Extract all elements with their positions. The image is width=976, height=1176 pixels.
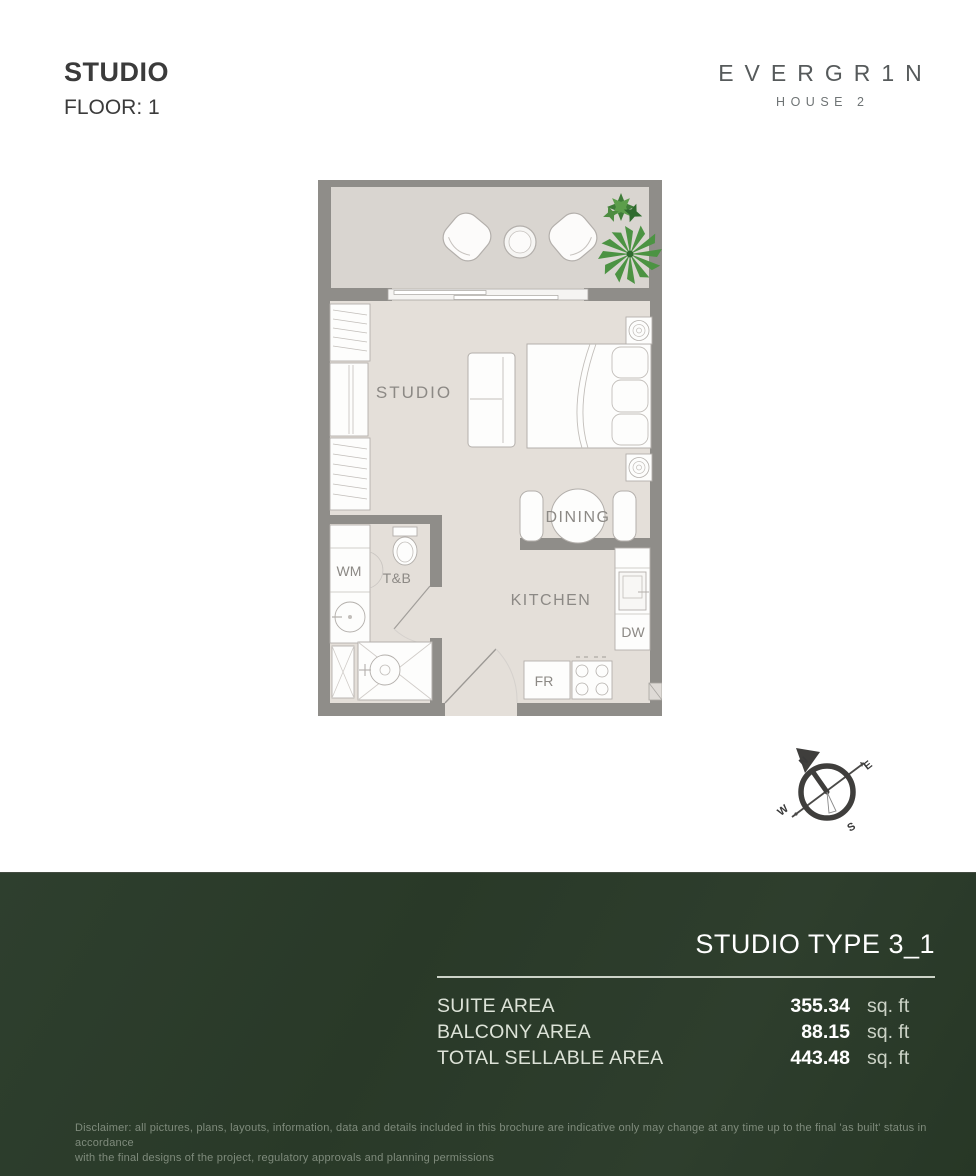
suite-area-unit: sq. ft [850, 993, 935, 1019]
heading-divider [437, 976, 935, 978]
room-label-dw: DW [621, 624, 645, 640]
summary-panel: STUDIO TYPE 3_1 SUITE AREA 355.34 sq. ft… [0, 872, 976, 1176]
nightstand-bottom [626, 454, 652, 481]
suite-area-value: 355.34 [755, 993, 850, 1019]
disclaimer-text: Disclaimer: all pictures, plans, layouts… [75, 1121, 935, 1166]
balcony-area-unit: sq. ft [850, 1019, 935, 1045]
total-area-value: 443.48 [755, 1045, 850, 1071]
compass-icon: N E W S [772, 737, 878, 843]
suite-area-label: SUITE AREA [437, 993, 755, 1019]
summary-row-suite: SUITE AREA 355.34 sq. ft [437, 993, 935, 1019]
room-label-wm: WM [337, 563, 362, 579]
unit-title-block: STUDIO FLOOR: 1 [64, 57, 169, 120]
compass-s: S [845, 820, 857, 834]
total-area-unit: sq. ft [850, 1045, 935, 1071]
room-label-tb: T&B [383, 570, 412, 586]
brand-logo: EVERGR1N HOUSE 2 [698, 60, 942, 109]
summary-row-total: TOTAL SELLABLE AREA 443.48 sq. ft [437, 1045, 935, 1071]
unit-summary: STUDIO TYPE 3_1 SUITE AREA 355.34 sq. ft… [437, 929, 935, 1071]
sofa [468, 353, 515, 447]
disclaimer-line-1: Disclaimer: all pictures, plans, layouts… [75, 1121, 935, 1151]
room-label-fr: FR [535, 673, 554, 689]
balcony-table [504, 226, 536, 258]
balcony-window [388, 289, 588, 300]
brand-subtitle: HOUSE 2 [698, 95, 942, 109]
disclaimer-line-2: with the final designs of the project, r… [75, 1151, 935, 1166]
brand-name: EVERGR1N [698, 60, 942, 87]
total-area-label: TOTAL SELLABLE AREA [437, 1045, 755, 1071]
summary-row-balcony: BALCONY AREA 88.15 sq. ft [437, 1019, 935, 1045]
shower [332, 642, 432, 700]
page-title: STUDIO [64, 57, 169, 88]
brochure-page: STUDIO FLOOR: 1 EVERGR1N HOUSE 2 [0, 0, 976, 1176]
compass-e: E [862, 759, 875, 773]
floor-plan: STUDIO DINING KITCHEN T&B WM DW FR [318, 180, 662, 716]
wardrobe [330, 304, 370, 510]
compass-w: W [775, 802, 791, 818]
balcony-area-label: BALCONY AREA [437, 1019, 755, 1045]
room-label-dining: DINING [546, 509, 611, 526]
balcony-area-value: 88.15 [755, 1019, 850, 1045]
floor-label: FLOOR: 1 [64, 96, 169, 120]
room-label-studio: STUDIO [376, 383, 452, 402]
unit-type-heading: STUDIO TYPE 3_1 [437, 929, 935, 960]
bed [527, 344, 651, 448]
nightstand-top [626, 317, 652, 344]
room-label-kitchen: KITCHEN [511, 592, 592, 609]
